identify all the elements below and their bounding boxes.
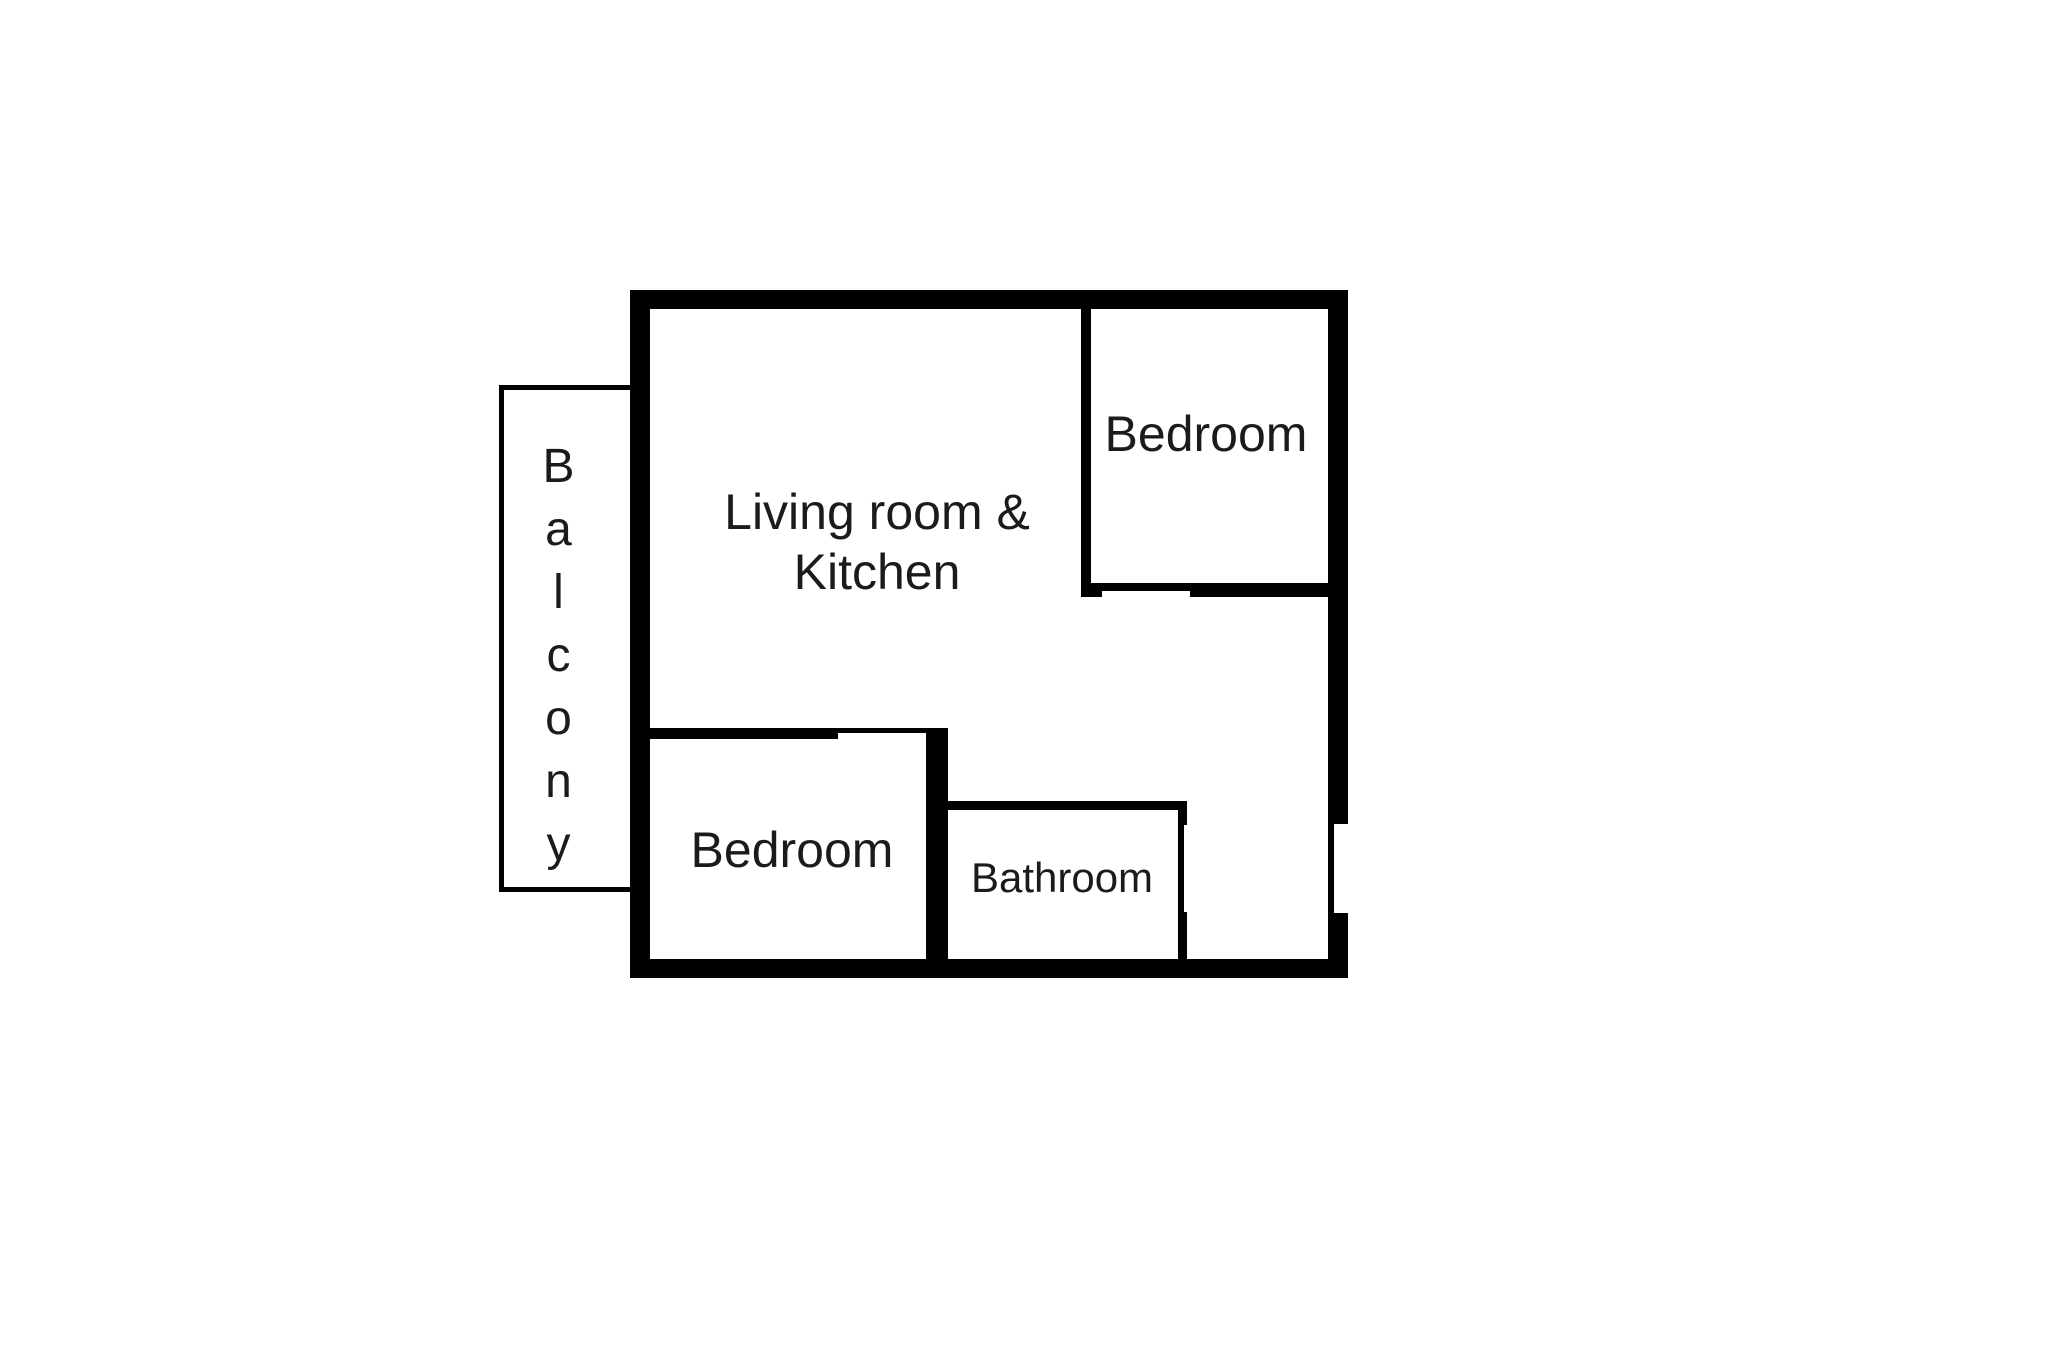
entrance-opening-line	[1328, 824, 1334, 913]
label-living-room-kitchen-line2: Kitchen	[627, 542, 1127, 602]
wall-outer-right-upper	[1328, 290, 1348, 824]
wall-bathroom-top	[947, 801, 1187, 810]
label-bathroom: Bathroom	[942, 853, 1182, 903]
wall-outer-right-lower	[1328, 913, 1348, 978]
label-bedroom-top-right: Bedroom	[1056, 404, 1356, 464]
balcony-outline-top	[499, 385, 632, 390]
floor-plan: Living room & Kitchen Bedroom Bedroom Ba…	[0, 0, 2048, 1365]
label-living-room-kitchen-line1: Living room &	[627, 482, 1127, 542]
label-living-room-kitchen: Living room & Kitchen	[627, 482, 1127, 602]
wall-bathroom-right-lower	[1178, 912, 1187, 959]
balcony-outline-left	[499, 385, 504, 892]
wall-bathroom-right-upper	[1178, 801, 1187, 825]
label-balcony: Balcony	[527, 440, 589, 900]
label-bedroom-bottom-left: Bedroom	[642, 820, 942, 880]
door-bedroom2-opening-line	[838, 728, 926, 733]
wall-bedroom2-top	[650, 728, 838, 739]
wall-outer-top	[630, 290, 1348, 309]
wall-outer-bottom	[630, 959, 1348, 978]
wall-bedroom1-bottom	[1190, 583, 1328, 597]
